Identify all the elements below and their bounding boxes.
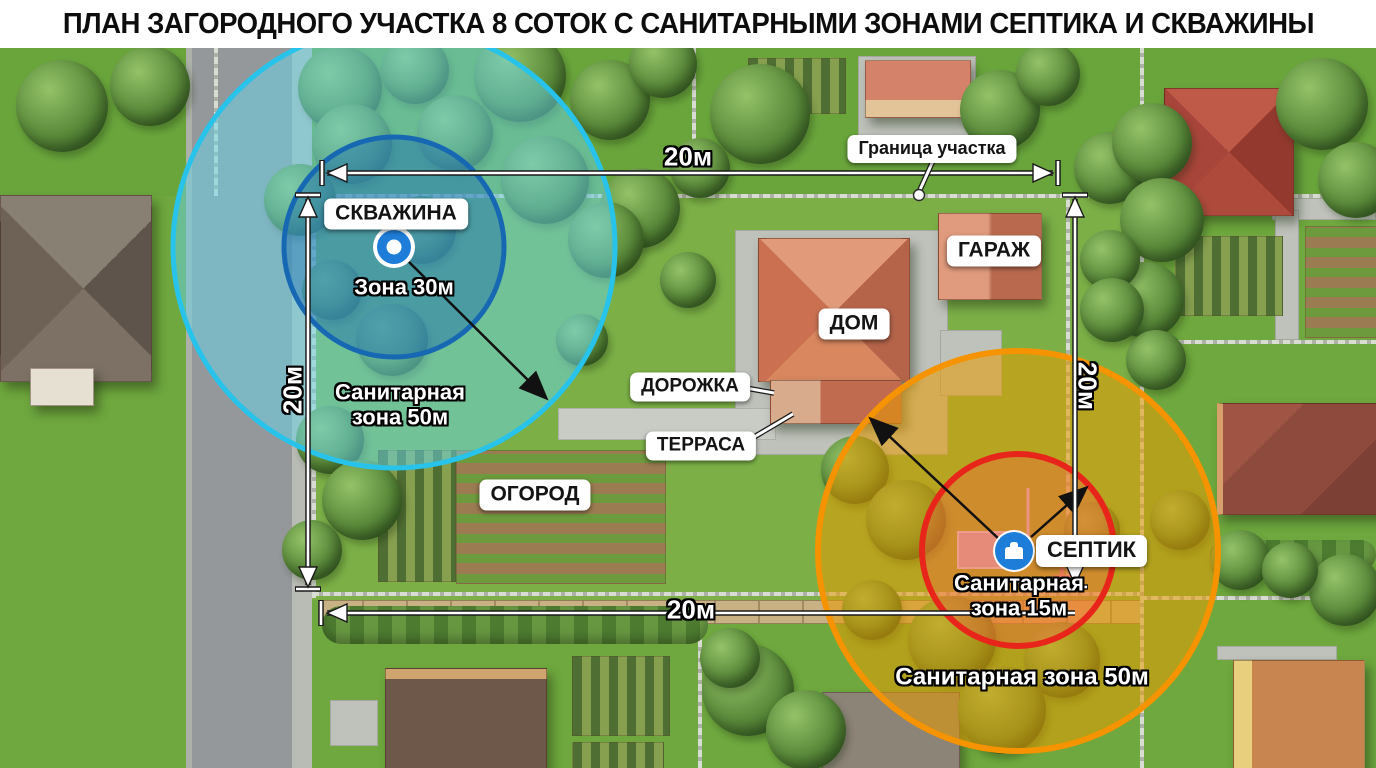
path-label: ДОРОЖКА xyxy=(630,373,750,402)
terrace-label: ТЕРРАСА xyxy=(646,432,756,461)
well-marker-icon xyxy=(373,226,415,268)
title-bar: ПЛАН ЗАГОРОДНОГО УЧАСТКА 8 СОТОК С САНИТ… xyxy=(0,0,1376,48)
garage-label: ГАРАЖ xyxy=(947,236,1041,267)
site-plan-map: СКВАЖИНА Зона 30м Санитарная зона 50м Гр… xyxy=(0,48,1376,768)
boundary-label: Граница участка xyxy=(847,135,1016,163)
dimension-label-bottom: 20м xyxy=(667,595,715,624)
septic-label: СЕПТИК xyxy=(1036,535,1147,567)
garden-label: ОГОРОД xyxy=(479,480,590,511)
infographic-page: ПЛАН ЗАГОРОДНОГО УЧАСТКА 8 СОТОК С САНИТ… xyxy=(0,0,1376,768)
boundary-point-dot xyxy=(914,190,925,201)
septic-outer-zone-label: Санитарная зона 50м xyxy=(895,665,1148,692)
boundary-leader-line xyxy=(919,161,933,192)
well-label: СКВАЖИНА xyxy=(324,199,468,230)
septic-tank-icon xyxy=(993,530,1035,572)
dimension-label-right: 20м xyxy=(1072,362,1101,410)
well-inner-zone-label: Зона 30м xyxy=(354,276,454,301)
house-label: ДОМ xyxy=(819,309,890,340)
page-title: ПЛАН ЗАГОРОДНОГО УЧАСТКА 8 СОТОК С САНИТ… xyxy=(62,8,1313,41)
dimension-label-top: 20м xyxy=(664,142,712,171)
septic-inner-zone-label: Санитарная зона 15м xyxy=(954,571,1084,620)
dimension-label-left: 20м xyxy=(278,366,307,414)
well-outer-zone-label: Санитарная зона 50м xyxy=(335,380,465,429)
